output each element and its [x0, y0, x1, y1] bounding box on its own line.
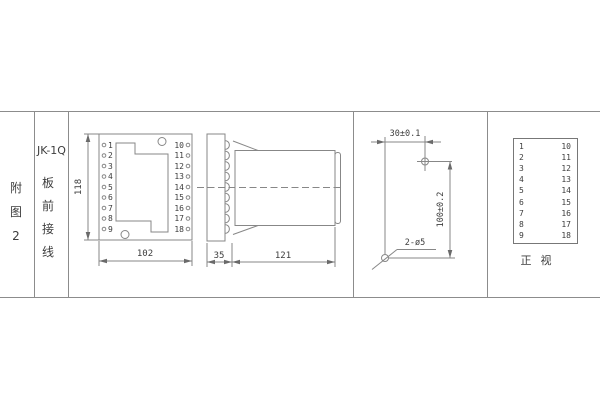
terminal-label: 5: [108, 183, 113, 192]
table-cell: 14: [561, 186, 571, 195]
table-row: 413: [514, 175, 577, 184]
table-cell: 18: [561, 231, 571, 240]
table-cell: 1: [519, 142, 524, 151]
terminal-label: 13: [170, 172, 184, 181]
dim-30-label: 30±0.1: [384, 129, 426, 140]
mounting-hole-bottom: [121, 231, 129, 239]
table-row: 312: [514, 164, 577, 173]
terminal-label: 9: [108, 225, 113, 234]
flange-taper-bottom: [233, 226, 258, 235]
table-cell: 4: [519, 175, 524, 184]
table-row: 110: [514, 142, 577, 151]
table-cell: 16: [561, 209, 571, 218]
caption-char: 视: [541, 254, 561, 267]
table-row: 817: [514, 220, 577, 229]
terminal-label: 17: [170, 214, 184, 223]
dim-100-label: 100±0.2: [436, 184, 447, 235]
terminal-label: 1: [108, 141, 113, 150]
side-view-outline: [197, 134, 344, 241]
table-cell: 10: [561, 142, 571, 151]
dim-121-label: 121: [269, 250, 297, 262]
dim-35-label: 35: [209, 250, 229, 262]
drawing-linework: [0, 0, 600, 400]
terminal-label: 14: [170, 183, 184, 192]
caption-char: 正: [521, 254, 541, 267]
terminal-label: 18: [170, 225, 184, 234]
table-cell: 7: [519, 209, 524, 218]
terminal-label: 12: [170, 162, 184, 171]
table-cell: 2: [519, 153, 524, 162]
table-row: 918: [514, 231, 577, 240]
relay-footprint: [116, 143, 168, 232]
front-view-dim-118: [84, 134, 99, 240]
table-cell: 12: [561, 164, 571, 173]
flange-taper-top: [233, 141, 258, 151]
table-cell: 8: [519, 220, 524, 229]
table-cell: 11: [561, 153, 571, 162]
table-cell: 3: [519, 164, 524, 173]
table-row: 615: [514, 198, 577, 207]
terminal-label: 15: [170, 193, 184, 202]
terminal-label: 10: [170, 141, 184, 150]
table-cell: 15: [561, 198, 571, 207]
table-cell: 17: [561, 220, 571, 229]
terminal-label: 16: [170, 204, 184, 213]
terminal-label: 6: [108, 193, 113, 202]
terminal-label: 8: [108, 214, 113, 223]
table-row: 514: [514, 186, 577, 195]
table-cell: 13: [561, 175, 571, 184]
terminal-label: 2: [108, 151, 113, 160]
table-caption: 正视: [505, 252, 567, 268]
table-cell: 5: [519, 186, 524, 195]
dim-118-label: 118: [73, 175, 85, 199]
terminal-label: 3: [108, 162, 113, 171]
mounting-hole-top: [158, 138, 166, 146]
table-cell: 6: [519, 198, 524, 207]
table-row: 716: [514, 209, 577, 218]
terminal-label: 7: [108, 204, 113, 213]
terminal-label: 4: [108, 172, 113, 181]
table-cell: 9: [519, 231, 524, 240]
table-row: 211: [514, 153, 577, 162]
dim-102-label: 102: [131, 248, 159, 260]
drawing-sheet: 附 图 2 JK-1Q 板 前 接 线: [0, 0, 600, 400]
terminal-label: 11: [170, 151, 184, 160]
hole-spec-label: 2-ø5: [400, 238, 430, 249]
terminal-table: 110 211 312 413 514 615 716 817 918: [513, 138, 578, 244]
